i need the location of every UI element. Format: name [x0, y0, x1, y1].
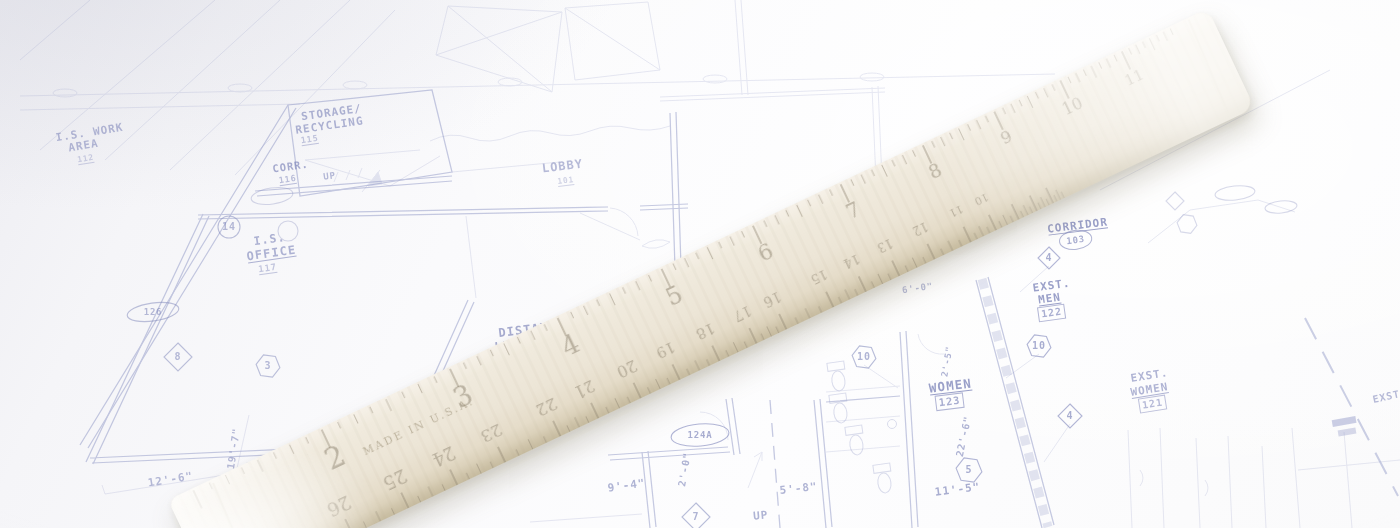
- ruler-tick: [712, 346, 719, 361]
- ruler-tick: [1076, 73, 1080, 82]
- ruler-tick: [845, 289, 850, 299]
- ruler-tick: [636, 281, 640, 290]
- ruler-tick: [450, 470, 457, 485]
- ruler-tick: [402, 392, 405, 398]
- ruler-tick: [941, 249, 944, 255]
- ruler-number-bottom: 24: [429, 442, 459, 471]
- ruler-number-top: 11: [1121, 65, 1146, 89]
- ruler-tick: [490, 462, 493, 468]
- ruler-tick: [1149, 38, 1155, 50]
- ruler-tick: [648, 387, 651, 393]
- ruler-tick: [490, 350, 493, 356]
- ruler-tick: [672, 364, 679, 379]
- ruler-tick: [878, 274, 883, 284]
- oval-callout: [250, 185, 294, 207]
- blueprint-label: CORRIDOR: [1047, 215, 1109, 235]
- ruler-number-bottom: 10: [972, 190, 990, 208]
- ruler-tick: [786, 210, 789, 216]
- ruler-tick: [1044, 88, 1048, 97]
- ruler-tick: [1052, 84, 1055, 90]
- ruler-tick: [767, 326, 772, 336]
- ruler-tick: [861, 175, 865, 184]
- blueprint-label: 12'-6": [147, 470, 194, 490]
- ruler-tick: [627, 397, 630, 403]
- ruler-tick: [994, 112, 1003, 130]
- ruler-tick: [531, 331, 535, 340]
- ruler-tick: [979, 226, 984, 236]
- ruler-tick: [1023, 205, 1028, 215]
- ruler-tick: [1136, 45, 1140, 54]
- blueprint-label: 122: [1040, 306, 1062, 320]
- ruler-number-bottom: 16: [761, 288, 784, 310]
- ruler-tick: [516, 449, 519, 455]
- ruler-number-bottom: 26: [324, 491, 355, 521]
- blueprint-label: LOBBY: [541, 157, 584, 176]
- floor-plan-dashed-lines: [770, 279, 1398, 528]
- ruler-tick: [193, 490, 202, 508]
- ruler-tick: [517, 337, 520, 343]
- ruler-tick: [999, 221, 1002, 227]
- ruler-number-bottom: 23: [477, 420, 505, 447]
- ruler-tick: [892, 160, 895, 166]
- ruler-tick: [808, 200, 811, 206]
- ruler-tick: [306, 437, 309, 443]
- ruler-tick: [1046, 199, 1049, 205]
- ruler-tick: [797, 205, 803, 217]
- ruler-tick: [749, 328, 756, 343]
- ruler-tick: [805, 308, 810, 318]
- callout-number: 124A: [688, 430, 713, 440]
- ruler-number-bottom: 17: [731, 303, 754, 325]
- ruler-tick: [730, 237, 734, 246]
- ruler-tick: [463, 363, 466, 369]
- blueprint-label: 103: [1066, 234, 1086, 246]
- ruler-tick: [1040, 197, 1045, 207]
- blueprint-label: 2'-5": [939, 345, 954, 377]
- ruler-number-bottom: 12: [910, 219, 930, 238]
- ruler-tick: [1054, 195, 1057, 201]
- ruler-tick: [386, 399, 392, 411]
- ruler-number-bottom: 20: [614, 356, 641, 382]
- ruler-tick: [418, 496, 421, 502]
- ruler-tick: [888, 274, 891, 280]
- ruler-tick: [741, 231, 744, 237]
- ruler-tick: [363, 522, 366, 528]
- blueprint-label: CORR.: [272, 158, 310, 175]
- ruler-number-top: 9: [997, 126, 1015, 149]
- ruler-tick: [967, 124, 970, 130]
- blueprint-label: 11'-5": [934, 480, 981, 498]
- ruler-tick: [428, 487, 433, 497]
- callout-number: 4: [1067, 410, 1074, 421]
- blueprint-label: 2'-0": [676, 451, 693, 487]
- oval-callout: [1214, 184, 1255, 202]
- ruler-number-bottom: 21: [571, 376, 598, 402]
- ruler-tick: [1060, 80, 1069, 98]
- ruler-tick: [912, 258, 917, 268]
- ruler-tick: [1068, 77, 1071, 83]
- ruler-tick: [695, 360, 700, 370]
- callout-number: 10: [857, 351, 871, 362]
- blueprint-hero-banner: 1412683124A74410105 I.S. WORKAREA112STOR…: [0, 0, 1400, 528]
- ruler-tick: [354, 414, 358, 423]
- ruler-tick: [1106, 59, 1110, 68]
- blueprint-label: 19'-7": [225, 427, 242, 470]
- ruler-tick: [795, 317, 798, 323]
- ruler-number-top: 6: [754, 238, 777, 267]
- ruler-tick: [290, 445, 294, 454]
- ruler-number-bottom: 22: [533, 394, 561, 421]
- ruler-tick: [779, 314, 786, 329]
- ruler-tick: [1011, 104, 1015, 113]
- ruler-tick: [498, 447, 505, 462]
- ruler-tick: [1083, 70, 1086, 76]
- ruler-tick: [707, 359, 710, 365]
- callout-number: 4: [1046, 252, 1053, 263]
- ruler-tick: [434, 376, 437, 382]
- callout-number: 3: [265, 360, 272, 371]
- ruler-number-top: 4: [557, 328, 585, 362]
- ruler-tick: [684, 258, 688, 267]
- ruler-tick: [1003, 215, 1008, 225]
- ruler-tick: [477, 356, 481, 365]
- ruler-tick: [913, 150, 916, 156]
- ruler-tick: [1156, 35, 1159, 41]
- diamond-callout: [1166, 192, 1184, 210]
- ruler-tick: [1061, 192, 1064, 198]
- ruler-tick: [274, 452, 277, 458]
- ruler-tick: [733, 342, 738, 352]
- ruler-tick: [1114, 55, 1117, 61]
- ruler-tick: [871, 170, 874, 176]
- callout-number: 8: [175, 351, 182, 362]
- ruler-tick: [615, 398, 620, 408]
- ruler-tick: [1129, 48, 1132, 54]
- callout-number: 126: [144, 307, 163, 317]
- ruler-tick: [656, 379, 661, 389]
- ruler-tick: [696, 253, 699, 259]
- ruler-tick: [859, 276, 866, 291]
- callout-number: 14: [222, 221, 236, 232]
- ruler-left-end-edge: [209, 483, 256, 528]
- ruler-tick: [744, 342, 747, 348]
- ruler-brand-text: MADE IN U.S.A.: [361, 394, 476, 457]
- ruler-tick: [707, 247, 713, 259]
- ruler-tick: [584, 306, 588, 315]
- ruler-tick: [687, 369, 690, 375]
- ruler-tick: [976, 120, 980, 129]
- bathroom-fixtures: [827, 361, 897, 494]
- ruler-tick: [974, 233, 977, 239]
- ruler-tick: [882, 165, 888, 177]
- ruler-number-top: 5: [662, 280, 688, 312]
- blueprint-label: 9'-4": [607, 476, 647, 494]
- ruler-tick: [1003, 108, 1006, 114]
- ruler-tick: [1099, 62, 1102, 68]
- ruler-tick: [964, 227, 971, 242]
- ruler-tick: [649, 275, 652, 281]
- ruler-tick: [1143, 42, 1146, 48]
- ruler-tick: [726, 350, 729, 356]
- callout-number: 5: [966, 464, 973, 475]
- ruler-number-bottom: 18: [693, 319, 718, 343]
- ruler-tick: [987, 227, 990, 233]
- ruler-tick: [610, 293, 616, 305]
- callout-number: 10: [1032, 340, 1046, 351]
- ruler-tick: [839, 297, 842, 303]
- ruler-tick: [989, 215, 996, 230]
- ruler-tick: [544, 436, 547, 442]
- ruler-tick: [1027, 96, 1033, 108]
- ruler-tick: [376, 511, 381, 521]
- ruler-tick: [1010, 216, 1013, 222]
- ruler-tick: [826, 292, 833, 307]
- ruler-tick: [855, 289, 858, 295]
- ruler-number-bottom: 13: [875, 236, 895, 255]
- ruler-tick: [819, 195, 823, 204]
- blueprint-label: 22'-6": [954, 415, 973, 458]
- ruler-tick: [1163, 32, 1167, 41]
- ruler-tick: [1056, 190, 1061, 200]
- ruler-tick: [401, 493, 408, 508]
- ruler-tick: [586, 416, 589, 422]
- ruler-tick: [673, 264, 676, 270]
- ruler-tick: [623, 287, 626, 293]
- ruler-tick: [927, 244, 934, 259]
- ruler-number-top: 2: [319, 437, 351, 477]
- ruler-number-top: 10: [1059, 93, 1086, 119]
- blueprint-label: 5'-8": [779, 480, 818, 497]
- ruler-tick: [902, 155, 906, 164]
- ruler-tick: [764, 221, 767, 227]
- ruler-tick: [905, 265, 908, 271]
- ruler-tick: [225, 475, 229, 484]
- ruler-tick: [345, 519, 352, 528]
- ruler-tick: [761, 334, 764, 340]
- ruler-tick: [571, 312, 574, 318]
- ruler-tick: [544, 324, 547, 330]
- ruler-tick: [775, 215, 779, 224]
- ruler-tick: [1036, 92, 1039, 98]
- ruler-tick: [941, 137, 945, 146]
- ruler-number-bottom: 14: [841, 251, 862, 272]
- ruler-tick: [418, 384, 422, 393]
- blueprint-label: EXST: [1372, 388, 1400, 405]
- ruler-number-bottom: 11: [947, 202, 965, 220]
- ruler-tick: [575, 417, 580, 427]
- ruler-number-bottom: 19: [653, 338, 678, 362]
- ruler-tick: [851, 179, 854, 185]
- ruler-tick: [932, 141, 935, 147]
- ruler-tick: [1038, 203, 1041, 209]
- ruler-tick: [959, 129, 965, 141]
- ruler-tick: [1020, 211, 1023, 217]
- ruler-tick: [504, 343, 510, 355]
- ruler-tick: [338, 422, 341, 428]
- ruler-tick: [567, 425, 570, 431]
- ruler-tick: [892, 261, 899, 276]
- ruler-tick: [985, 116, 988, 122]
- ruler-tick: [466, 473, 469, 479]
- ruler-tick: [553, 421, 560, 436]
- ruler-tick: [442, 484, 445, 490]
- ruler-tick: [830, 189, 833, 195]
- ruler-tick: [1122, 51, 1131, 69]
- blueprint-label: UP: [753, 508, 769, 522]
- ruler-tick: [719, 242, 722, 248]
- ruler-tick: [1019, 100, 1022, 106]
- ruler-tick: [923, 257, 926, 263]
- ruler-number-bottom: 15: [808, 267, 829, 288]
- ruler-tick: [257, 460, 263, 472]
- ruler-tick: [959, 240, 962, 246]
- ruler-number-top: 8: [925, 159, 945, 184]
- blueprint-label: UP: [323, 170, 337, 182]
- ruler-tick: [241, 468, 244, 474]
- ruler-tick: [871, 281, 874, 287]
- ruler-tick: [1029, 207, 1032, 213]
- ruler-tick: [1012, 204, 1019, 219]
- ruler-tick: [597, 300, 600, 306]
- ruler-tick: [819, 306, 822, 312]
- ruler-tick: [391, 508, 394, 514]
- callout-number: 7: [693, 511, 700, 522]
- blueprint-label: 6'-0": [901, 281, 933, 295]
- ruler-tick: [950, 133, 953, 139]
- ruler-tick: [370, 407, 373, 413]
- ruler-tick: [209, 483, 212, 489]
- ruler-tick: [528, 439, 533, 449]
- ruler-number-bottom: 25: [380, 465, 411, 495]
- ruler-tick: [477, 464, 482, 474]
- ruler-tick: [948, 241, 953, 251]
- ruler-tick: [667, 378, 670, 384]
- ruler-tick: [1091, 66, 1097, 78]
- ruler-tick: [591, 403, 598, 418]
- ruler-tick: [776, 327, 779, 333]
- ruler-number-top: 7: [842, 197, 864, 224]
- ruler-tick: [1170, 28, 1173, 34]
- ruler-tick: [606, 407, 609, 413]
- ruler-tick: [634, 383, 641, 398]
